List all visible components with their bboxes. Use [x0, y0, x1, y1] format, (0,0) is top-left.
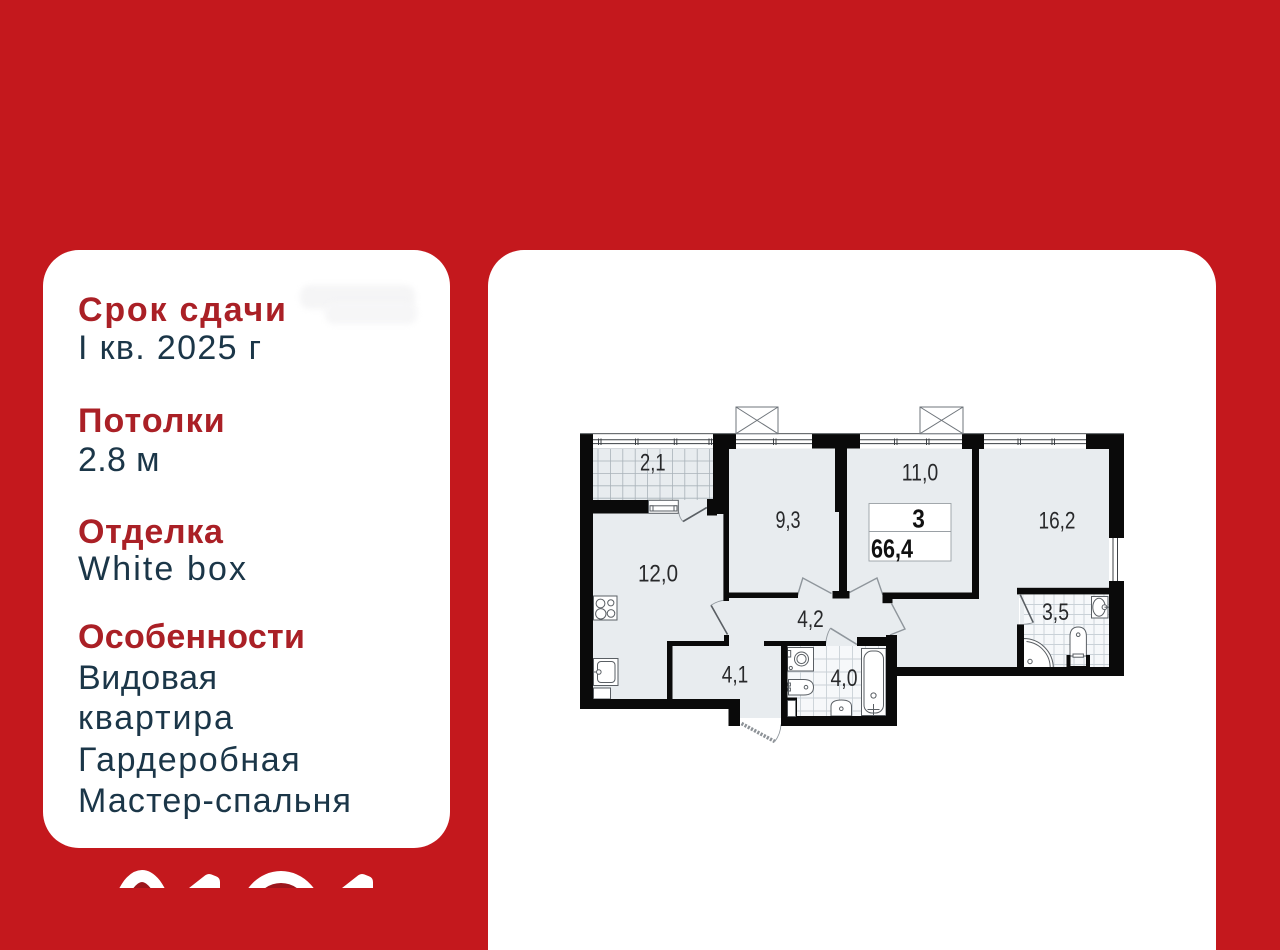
svg-text:16,2: 16,2: [1039, 508, 1076, 535]
svg-text:9,3: 9,3: [776, 507, 801, 534]
svg-text:66,4: 66,4: [871, 534, 913, 564]
svg-text:12,0: 12,0: [638, 561, 678, 588]
svg-text:2,1: 2,1: [640, 450, 666, 477]
svg-text:4,1: 4,1: [722, 662, 749, 689]
svg-text:3: 3: [912, 504, 925, 534]
svg-text:4,2: 4,2: [797, 606, 824, 633]
svg-text:11,0: 11,0: [902, 460, 939, 487]
svg-text:3,5: 3,5: [1042, 599, 1069, 626]
svg-text:4,0: 4,0: [831, 665, 858, 692]
